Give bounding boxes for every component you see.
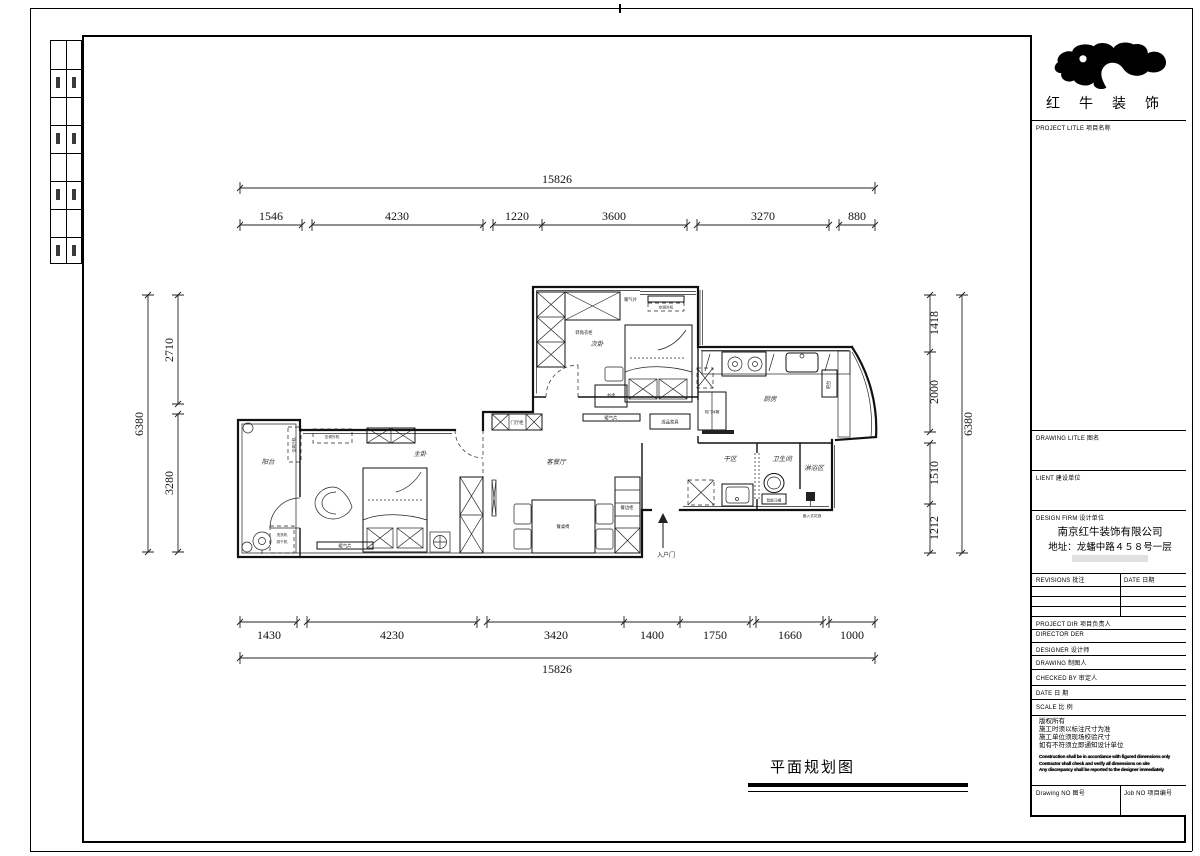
door-bath-sliding — [755, 453, 759, 499]
field-revisions: REVISIONS 批注 — [1036, 575, 1085, 584]
label-desk: 书桌 — [607, 392, 616, 399]
room-label-living: 客餐厅 — [546, 458, 567, 466]
dim-right-4: 1212 — [927, 516, 941, 540]
dim-top-total: 15826 — [542, 172, 572, 186]
room-label-dry: 干区 — [724, 455, 739, 463]
dim-right-total: 6380 — [961, 412, 975, 436]
basin-drain — [736, 498, 739, 501]
bed-blanket — [363, 472, 427, 520]
label-dryer: 烘干机 — [276, 539, 287, 544]
dim-bottom-7: 1000 — [840, 628, 864, 642]
door-second-dashed — [546, 365, 578, 397]
toilet-seat — [768, 477, 781, 489]
label-finished-furniture: 成品家具 — [661, 419, 679, 426]
sheet-title-bar — [748, 783, 968, 787]
label-radiator: 暖气片 — [339, 543, 352, 550]
label-shower-head: 嵌入式花洒 — [803, 513, 822, 518]
label-ac-unit: 空调外机 — [325, 434, 340, 439]
label-dining-set: 餐桌椅 — [557, 523, 571, 530]
label-washer: 洗衣机 — [276, 532, 287, 537]
radiator-second — [648, 296, 684, 302]
field-project-dir: PROJECT DIR 项目负责人 — [1036, 619, 1111, 628]
stove — [722, 352, 766, 376]
sideboard — [615, 477, 640, 553]
wall-bay-window-arc — [852, 347, 876, 437]
burner-center — [733, 362, 738, 367]
company-address: 地址：龙蟠中路４５８号一层 — [1032, 539, 1188, 553]
dim-top-5: 3270 — [751, 209, 775, 223]
label-corner-wardrobe: 转角衣柜 — [575, 329, 593, 336]
bed-second — [625, 325, 692, 402]
field-design-firm: DESIGN FIRM 设计单位 — [1036, 513, 1104, 522]
field-project-title: PROJECT LITLE 项目名称 — [1036, 123, 1111, 132]
revision-divider — [1120, 573, 1121, 616]
dim-right-2: 2000 — [927, 380, 941, 404]
company-phone-smudge — [1072, 555, 1148, 562]
label-radiator: 暖气片 — [624, 296, 637, 303]
kitchen-sink — [786, 353, 818, 372]
floor-plan-canvas: 15826 1546 4230 1220 3600 3270 880 1430 … — [0, 0, 1200, 856]
dim-top-1: 1546 — [259, 209, 283, 223]
dim-bottom-total: 15826 — [542, 662, 572, 676]
counter-hatch — [705, 354, 830, 371]
dim-bottom-2: 4230 — [380, 628, 404, 642]
sheet-title: 平面规划图 — [770, 756, 855, 777]
dim-top-3: 1220 — [505, 209, 529, 223]
dining-chair — [514, 504, 531, 524]
door-balcony — [270, 498, 300, 528]
dim-top-2: 4230 — [385, 209, 409, 223]
label-ac-unit: 空调外机 — [291, 437, 296, 452]
dining-chair — [514, 529, 531, 549]
dim-bottom-5: 1750 — [703, 628, 727, 642]
burner-center — [753, 362, 758, 367]
toilet-bowl — [764, 474, 784, 493]
burner — [748, 357, 762, 371]
field-scale: SCALE 比 例 — [1036, 702, 1073, 711]
armchair — [315, 487, 352, 519]
dim-bottom-4: 1400 — [640, 628, 664, 642]
window-lines — [640, 292, 696, 295]
kitchen-counter-side — [838, 351, 850, 437]
dim-ticks-top — [237, 182, 878, 231]
label-bar: 吧台 — [825, 381, 832, 390]
label-fridge: 双门冰箱 — [705, 409, 720, 414]
room-label-kitchen: 厨房 — [764, 395, 778, 403]
dim-bottom-3: 3420 — [544, 628, 568, 642]
room-label-balcony: 阳台 — [262, 458, 276, 466]
faucet — [800, 354, 804, 358]
label-ac-unit: 空调外机 — [659, 305, 674, 310]
door-master-dashed — [455, 430, 483, 477]
dim-right-1: 1418 — [927, 311, 941, 335]
field-revision-date: DATE 日期 — [1124, 575, 1155, 584]
entrance-arrow-head — [658, 513, 668, 523]
dim-left-total: 6380 — [132, 412, 146, 436]
wall-outline — [238, 287, 876, 557]
floor-drain — [242, 542, 252, 552]
dim-bottom-1: 1430 — [257, 628, 281, 642]
floor-drain — [243, 423, 253, 433]
washing-machine-center — [259, 538, 266, 545]
field-designer: DESIGNER 设计师 — [1036, 645, 1089, 654]
bed-blanket — [625, 330, 692, 372]
room-label-master: 主卧 — [414, 450, 428, 458]
label-sideboard: 餐边柜 — [621, 504, 635, 511]
drawing-no-divider — [1120, 785, 1121, 817]
desk-chair — [605, 367, 623, 381]
dining-chair — [596, 529, 613, 549]
field-director: DIRECTOR DER — [1036, 632, 1084, 638]
field-job-no: Job NO 项目编号 — [1124, 788, 1172, 797]
notes-english: Construction shall be in accordance with… — [1039, 754, 1170, 774]
bed-master — [363, 468, 427, 552]
dim-top-4: 3600 — [602, 209, 626, 223]
field-client: LIENT 建设单位 — [1036, 473, 1081, 482]
dim-bottom-6: 1660 — [778, 628, 802, 642]
label-radiator: 暖气片 — [605, 415, 618, 422]
dim-top-6: 880 — [848, 209, 866, 223]
room-label-bath: 卫生间 — [772, 455, 793, 463]
sheet-title-underline — [748, 791, 968, 792]
dim-left-2: 3280 — [162, 471, 176, 495]
label-hall-cabinet: 门厅柜 — [511, 419, 525, 426]
fridge-plinth — [702, 430, 734, 434]
label-entrance: 入户门 — [657, 551, 675, 559]
field-drawing-title: DRAWING LITLE 图名 — [1036, 433, 1099, 442]
drawing-sheet: 15826 1546 4230 1220 3600 3270 880 1430 … — [0, 0, 1200, 856]
washing-machine — [253, 532, 271, 550]
field-drawing-by: DRAWING 制图人 — [1036, 658, 1087, 667]
field-drawing-no: Drawing NO 图号 — [1036, 788, 1085, 797]
company-name: 南京红牛装饰有限公司 — [1032, 524, 1188, 539]
shower-head-icon — [806, 492, 815, 501]
label-smart-toilet: 智能马桶 — [767, 498, 782, 503]
rednbull-logo-icon — [1044, 39, 1176, 93]
burner — [728, 357, 742, 371]
room-label-shower: 淋浴区 — [804, 464, 825, 472]
notes-chinese: 版权所有 施工时须以标注尺寸为准 施工单位须现场校验尺寸 如有不符须立即通知设计… — [1039, 718, 1124, 750]
room-label-second: 次卧 — [591, 340, 605, 348]
field-date: DATE 日 期 — [1036, 688, 1069, 697]
dim-left-1: 2710 — [162, 338, 176, 362]
logo-text: 红牛装饰 — [1032, 93, 1188, 113]
dim-right-3: 1510 — [927, 461, 941, 485]
dining-chair — [596, 504, 613, 524]
dim-lines — [148, 188, 962, 658]
title-block: 红牛装饰 PROJECT LITLE 项目名称 DRAWING LITLE 图名… — [1030, 35, 1186, 817]
field-checked-by: CHECKED BY 审定人 — [1036, 673, 1097, 682]
